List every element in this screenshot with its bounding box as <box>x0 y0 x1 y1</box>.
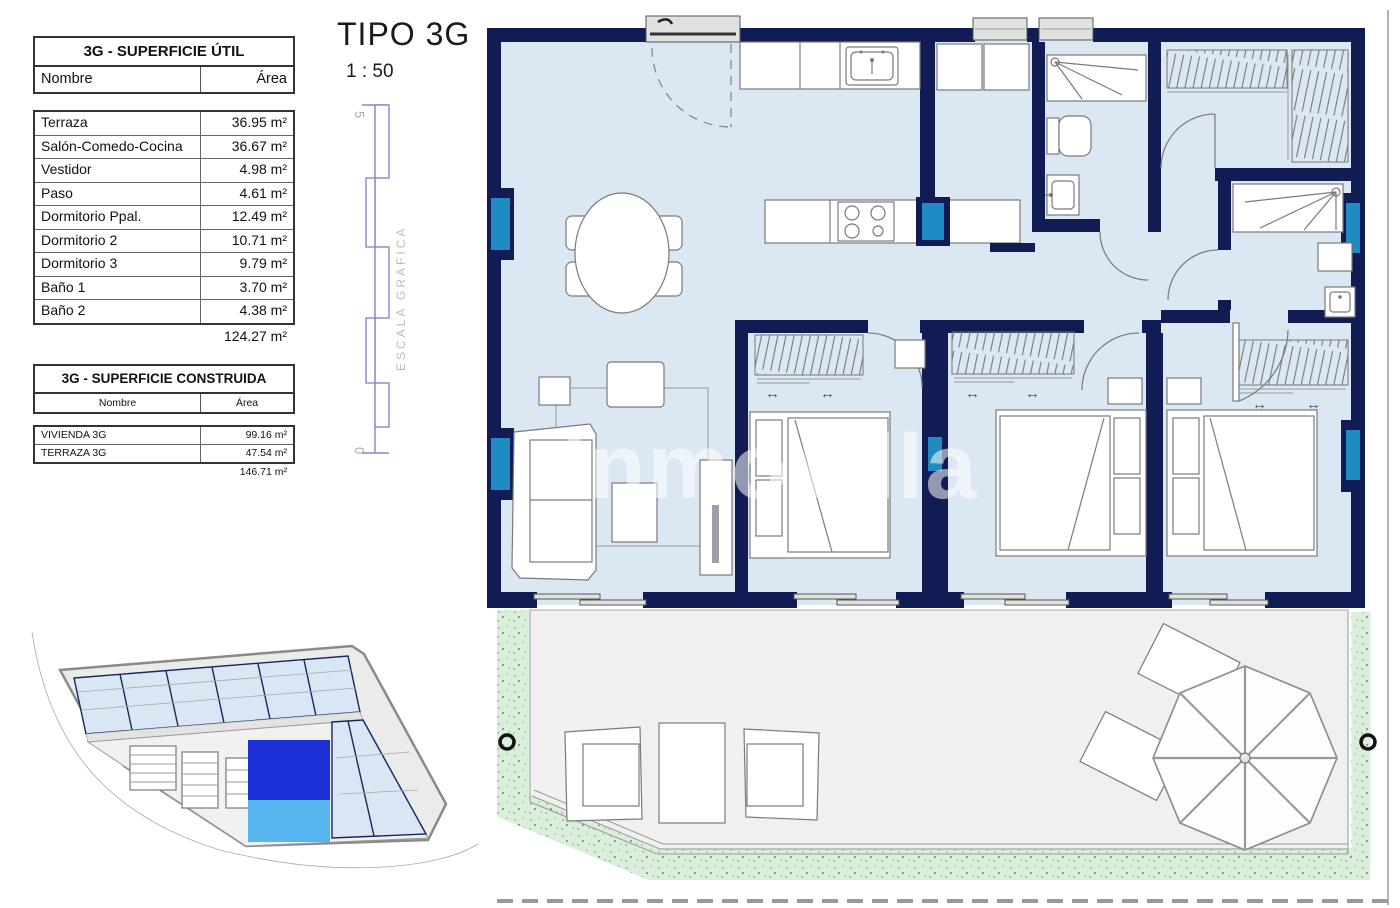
table-title: 3G - SUPERFICIE ÚTIL <box>33 36 295 67</box>
table-row: VIVIENDA 3G99.16 m² <box>35 427 293 445</box>
slide-arrow-icon: ↔ <box>965 385 980 402</box>
table-row: Dormitorio Ppal.12.49 m² <box>35 206 293 230</box>
nightstand <box>1108 378 1142 404</box>
top-windows <box>967 18 1093 42</box>
wardrobe <box>1167 50 1287 88</box>
door-leaf <box>1233 323 1239 401</box>
nightstand <box>895 340 925 368</box>
table-row: Paso4.61 m² <box>35 183 293 207</box>
nightstand <box>1167 378 1201 404</box>
slide-arrow-icon: ↔ <box>1025 385 1040 402</box>
terrace-armchair <box>565 727 642 821</box>
shower <box>1233 184 1343 232</box>
kitchen-sink <box>846 47 898 85</box>
toilet <box>1318 243 1352 271</box>
floor-plan: ↔ ↔ ↔ ↔ <box>487 8 1400 908</box>
site-key-plan <box>30 618 480 902</box>
table-row: Terraza36.95 m² <box>35 112 293 136</box>
toilet <box>1047 116 1091 156</box>
table-row: Vestidor4.98 m² <box>35 159 293 183</box>
table-row: Baño 24.38 m² <box>35 300 293 323</box>
table-total: 146.71 m² <box>33 464 295 481</box>
table-column-headers: Nombre Área <box>33 394 295 414</box>
col-nombre: Nombre <box>35 394 200 412</box>
table-column-headers: Nombre Área <box>33 67 295 94</box>
scale-ratio-label: 1 : 50 <box>346 61 394 83</box>
superficie-construida-table: 3G - SUPERFICIE CONSTRUIDA Nombre Área V… <box>33 364 295 481</box>
graphic-scale-bar: 5 0 ESCALA GRAFICA <box>345 95 425 470</box>
terrace-table <box>659 723 725 823</box>
table-row: Baño 13.70 m² <box>35 277 293 301</box>
slide-arrow-icon: ↔ <box>765 385 780 402</box>
highlighted-unit-terraza <box>248 800 330 842</box>
col-area: Área <box>200 67 293 92</box>
sink <box>1045 175 1079 215</box>
slide-arrow-icon: ↔ <box>820 385 835 402</box>
shower <box>1047 55 1146 101</box>
watermark-text: inmovilla <box>562 416 979 518</box>
superficie-util-table: 3G - SUPERFICIE ÚTIL Nombre Área Terraza… <box>33 36 295 348</box>
table-body: VIVIENDA 3G99.16 m² TERRAZA 3G47.54 m² <box>33 425 295 464</box>
table-row: Dormitorio 39.79 m² <box>35 253 293 277</box>
scale-bottom-label: 0 <box>352 447 367 454</box>
table-total: 124.27 m² <box>33 325 295 348</box>
side-table <box>539 377 570 405</box>
armchair <box>607 362 664 407</box>
double-bed <box>996 410 1146 556</box>
col-area: Área <box>200 394 293 412</box>
kitchen-appliance <box>984 44 1029 90</box>
table-row: Dormitorio 210.71 m² <box>35 230 293 254</box>
terrace <box>500 610 1375 864</box>
sink <box>1325 287 1355 317</box>
table-row: Salón-Comedo-Cocina36.67 m² <box>35 136 293 160</box>
highlighted-unit-vivienda <box>248 740 330 800</box>
wardrobe <box>1292 50 1348 162</box>
table-body: Terraza36.95 m² Salón-Comedo-Cocina36.67… <box>33 110 295 325</box>
terrace-armchair <box>744 729 819 820</box>
escala-grafica-label: ESCALA GRAFICA <box>394 226 408 371</box>
page-title: TIPO 3G <box>337 16 470 53</box>
plan-sheet: { "plan_header": { "title": "TIPO 3G", "… <box>0 0 1400 908</box>
col-nombre: Nombre <box>35 67 200 92</box>
parasol-umbrella <box>1153 666 1337 850</box>
scale-top-label: 5 <box>352 111 367 118</box>
kitchen-appliance <box>937 44 982 90</box>
table-title: 3G - SUPERFICIE CONSTRUIDA <box>33 364 295 394</box>
double-bed <box>1167 410 1317 556</box>
dining-table <box>575 193 669 313</box>
table-row: TERRAZA 3G47.54 m² <box>35 445 293 462</box>
